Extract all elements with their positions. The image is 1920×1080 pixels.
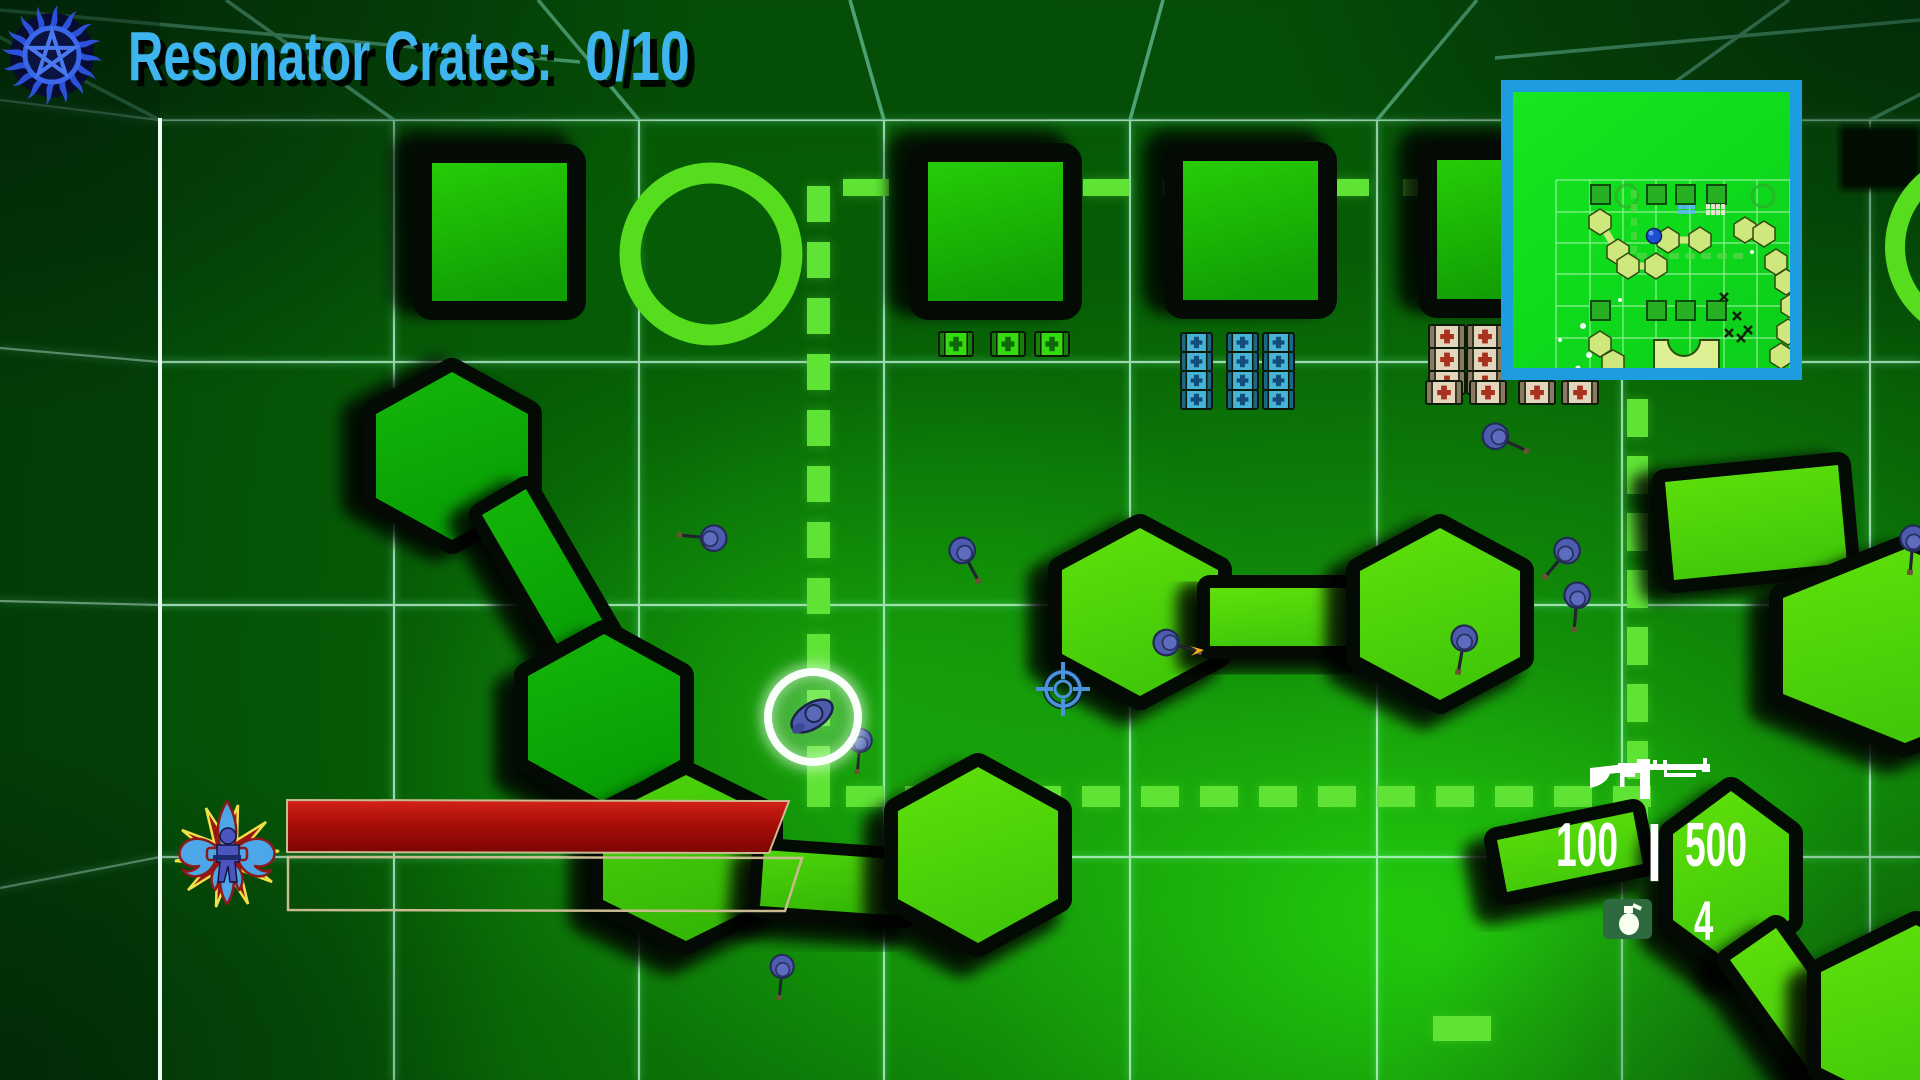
svg-text:100: 100 [1556, 810, 1618, 879]
svg-text:|: | [1646, 814, 1663, 882]
svg-text:500: 500 [1685, 810, 1747, 879]
svg-text:0/10: 0/10 [585, 17, 690, 95]
svg-text:4: 4 [1694, 890, 1713, 953]
svg-text:Resonator Crates:: Resonator Crates: [128, 16, 553, 95]
